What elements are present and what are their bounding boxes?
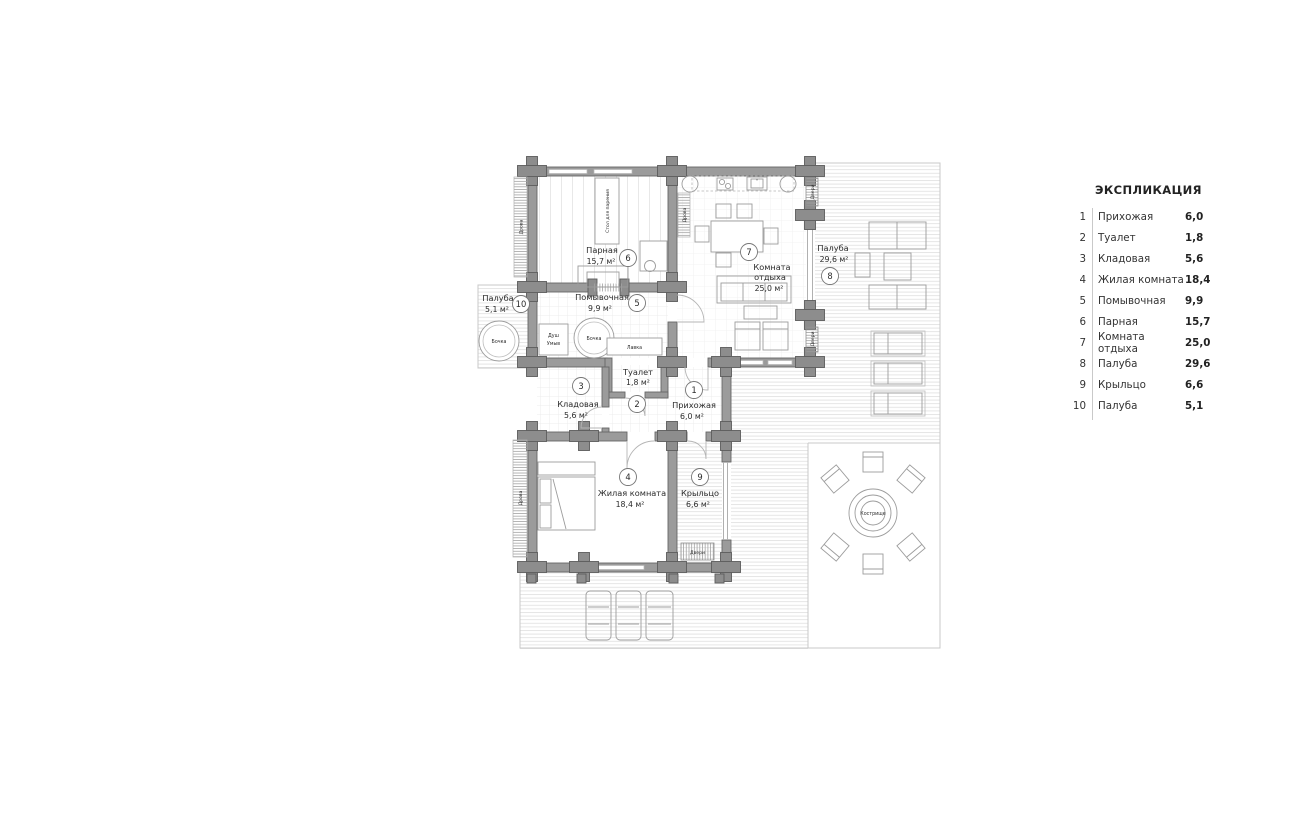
firewood-label: Дрова	[519, 219, 525, 234]
legend-row-name: Палуба	[1098, 358, 1185, 370]
room-number: 9	[697, 472, 702, 482]
legend-row-number: 9	[1066, 379, 1086, 391]
room-name: Комната	[753, 262, 790, 272]
legend-row-name: Туалет	[1098, 232, 1185, 244]
legend-row-area: 5,6	[1185, 253, 1203, 265]
bed	[538, 462, 595, 530]
legend-row-number: 3	[1066, 253, 1086, 265]
room-area: 29,6 м²	[820, 255, 849, 264]
room-area: 6,6 м²	[686, 500, 710, 509]
bench-label: Лавка	[627, 345, 642, 351]
room-name: Крыльцо	[681, 488, 719, 498]
legend-row-area: 18,4	[1185, 274, 1210, 286]
steam-table-label: Стол для парения	[605, 189, 611, 233]
legend-row-number: 6	[1066, 316, 1086, 328]
legend-row-name: Жилая комната	[1098, 274, 1185, 286]
room-name: Туалет	[622, 367, 653, 377]
room-area: 25,0 м²	[755, 284, 784, 293]
room-number: 6	[625, 253, 630, 263]
room-name: Жилая комната	[598, 488, 666, 498]
barrel-label: Бочка	[587, 336, 602, 342]
room-area: 5,6 м²	[564, 411, 588, 420]
legend-row-name: Крыльцо	[1098, 379, 1185, 391]
room-area: 1,8 м²	[626, 378, 650, 387]
firewood-label: Дрова	[682, 207, 688, 222]
firewood-strip: Дрова	[678, 193, 690, 237]
room-number: 5	[634, 298, 639, 308]
legend-row-area: 9,9	[1185, 295, 1203, 307]
legend-row-name: Кладовая	[1098, 253, 1185, 265]
room-label-living: 4 Жилая комната 18,4 м²	[598, 469, 666, 510]
sauna-stove	[640, 241, 667, 272]
room-name: Палуба	[817, 243, 848, 253]
room-name: Палуба	[482, 293, 513, 303]
room-number: 1	[691, 385, 696, 395]
room-number: 8	[827, 271, 832, 281]
floor-plan-drawing: Дрова Дрова Дрова Двери Двери Двери Стол…	[470, 150, 950, 660]
legend-title: ЭКСПЛИКАЦИЯ	[1095, 183, 1236, 197]
legend-row-area: 15,7	[1185, 316, 1210, 328]
bench-lavka: Лавка	[607, 338, 662, 355]
legend-row-number: 1	[1066, 211, 1086, 223]
doors-label: Двери	[810, 331, 816, 346]
legend-row-number: 7	[1066, 337, 1086, 349]
legend-row-name: Помывочная	[1098, 295, 1185, 307]
deck-door-strip: Двери	[806, 178, 818, 206]
shower-label-2: Умыв	[547, 341, 560, 347]
legend-row-number: 4	[1066, 274, 1086, 286]
floor-plan-page: Дрова Дрова Дрова Двери Двери Двери Стол…	[0, 0, 1300, 836]
legend-rows: 1 Прихожая 6,0 2 Туалет 1,8 3 Кладовая 5…	[1066, 206, 1236, 417]
legend-row-name: Прихожая	[1098, 211, 1185, 223]
room-number: 3	[578, 381, 583, 391]
room-name: Парная	[586, 245, 618, 255]
barrel-outdoor: Бочка	[479, 321, 519, 361]
room-number: 2	[634, 399, 639, 409]
room-number: 4	[625, 472, 630, 482]
porch-steps: Двери	[681, 543, 714, 560]
legend-row-number: 5	[1066, 295, 1086, 307]
legend-row-name: Комната отдыха	[1098, 331, 1185, 355]
barrel-label: Бочка	[492, 339, 507, 345]
room-area: 5,1 м²	[485, 305, 509, 314]
doors-label: Двери	[810, 184, 816, 199]
firewood-label: Дрова	[518, 490, 524, 505]
legend-row-number: 10	[1066, 400, 1086, 412]
shower-label-1: Душ	[548, 333, 559, 339]
room-name: Помывочная	[575, 292, 629, 302]
shower-unit: Душ Умыв	[539, 324, 568, 355]
room-area: 18,4 м²	[616, 500, 645, 509]
doors-label: Двери	[690, 550, 705, 556]
legend-row-area: 6,6	[1185, 379, 1203, 391]
room-area: 6,0 м²	[680, 412, 704, 421]
legend-row-area: 5,1	[1185, 400, 1203, 412]
room-number: 10	[516, 299, 527, 309]
room-area: 15,7 м²	[587, 257, 616, 266]
firewood-strip: Дрова	[513, 440, 527, 557]
legend-row-area: 29,6	[1185, 358, 1210, 370]
deck-door-strip: Двери	[806, 327, 818, 352]
legend-row-name: Парная	[1098, 316, 1185, 328]
legend-row-number: 8	[1066, 358, 1086, 370]
room-area: 9,9 м²	[588, 304, 612, 313]
legend-row-area: 25,0	[1185, 337, 1210, 349]
legend-divider	[1092, 208, 1093, 420]
legend-row-area: 1,8	[1185, 232, 1203, 244]
legend: ЭКСПЛИКАЦИЯ 1 Прихожая 6,0 2 Туалет 1,8 …	[1066, 183, 1236, 417]
fire-pit: Кострище	[821, 452, 925, 574]
legend-row-area: 6,0	[1185, 211, 1203, 223]
room-name: отдыха	[754, 272, 786, 282]
legend-row-number: 2	[1066, 232, 1086, 244]
firepit-label: Кострище	[860, 511, 885, 517]
room-name: Прихожая	[672, 400, 716, 410]
firewood-strip: Дрова	[514, 177, 527, 277]
room-number: 7	[746, 247, 751, 257]
room-name: Кладовая	[557, 399, 599, 409]
steam-table: Стол для парения	[595, 178, 619, 244]
legend-row-name: Палуба	[1098, 400, 1185, 412]
